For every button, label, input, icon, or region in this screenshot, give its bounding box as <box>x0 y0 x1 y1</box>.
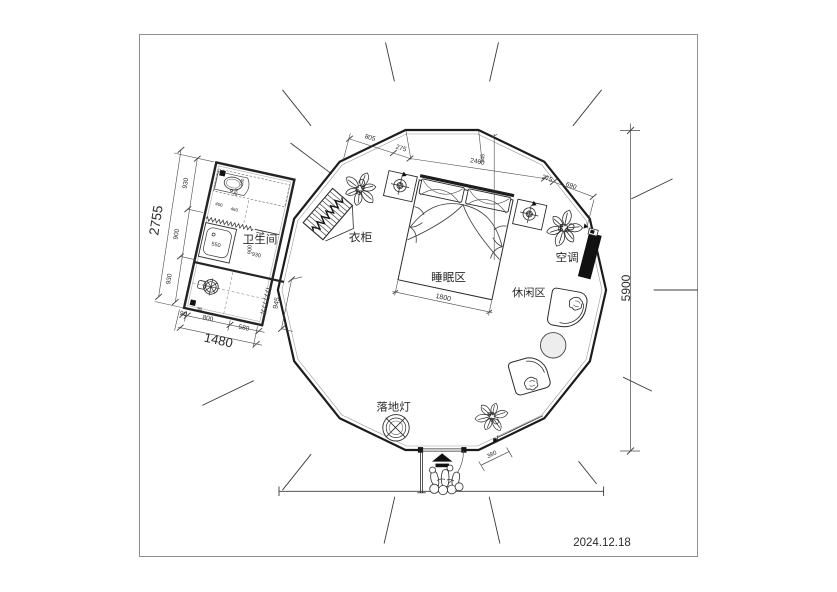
svg-text:5900: 5900 <box>619 274 633 301</box>
svg-text:1800: 1800 <box>435 293 452 303</box>
svg-text:930: 930 <box>182 177 191 189</box>
svg-text:380: 380 <box>486 450 498 460</box>
svg-text:275: 275 <box>541 174 554 184</box>
svg-text:100: 100 <box>239 178 246 187</box>
svg-text:2024.12.18: 2024.12.18 <box>573 537 631 549</box>
svg-text:400: 400 <box>215 201 224 208</box>
svg-text:580: 580 <box>238 324 250 333</box>
svg-text:460: 460 <box>230 206 239 213</box>
svg-text:900: 900 <box>173 228 182 240</box>
svg-text:930: 930 <box>165 273 174 285</box>
svg-text:945: 945 <box>272 297 281 310</box>
svg-text:805: 805 <box>364 133 377 143</box>
svg-text:800: 800 <box>202 314 214 323</box>
svg-text:550: 550 <box>211 241 221 249</box>
svg-text:930: 930 <box>251 252 261 260</box>
svg-text:1480: 1480 <box>203 330 234 351</box>
svg-text:275: 275 <box>395 144 408 154</box>
svg-text:745: 745 <box>481 154 487 163</box>
svg-text:2755: 2755 <box>146 204 166 236</box>
